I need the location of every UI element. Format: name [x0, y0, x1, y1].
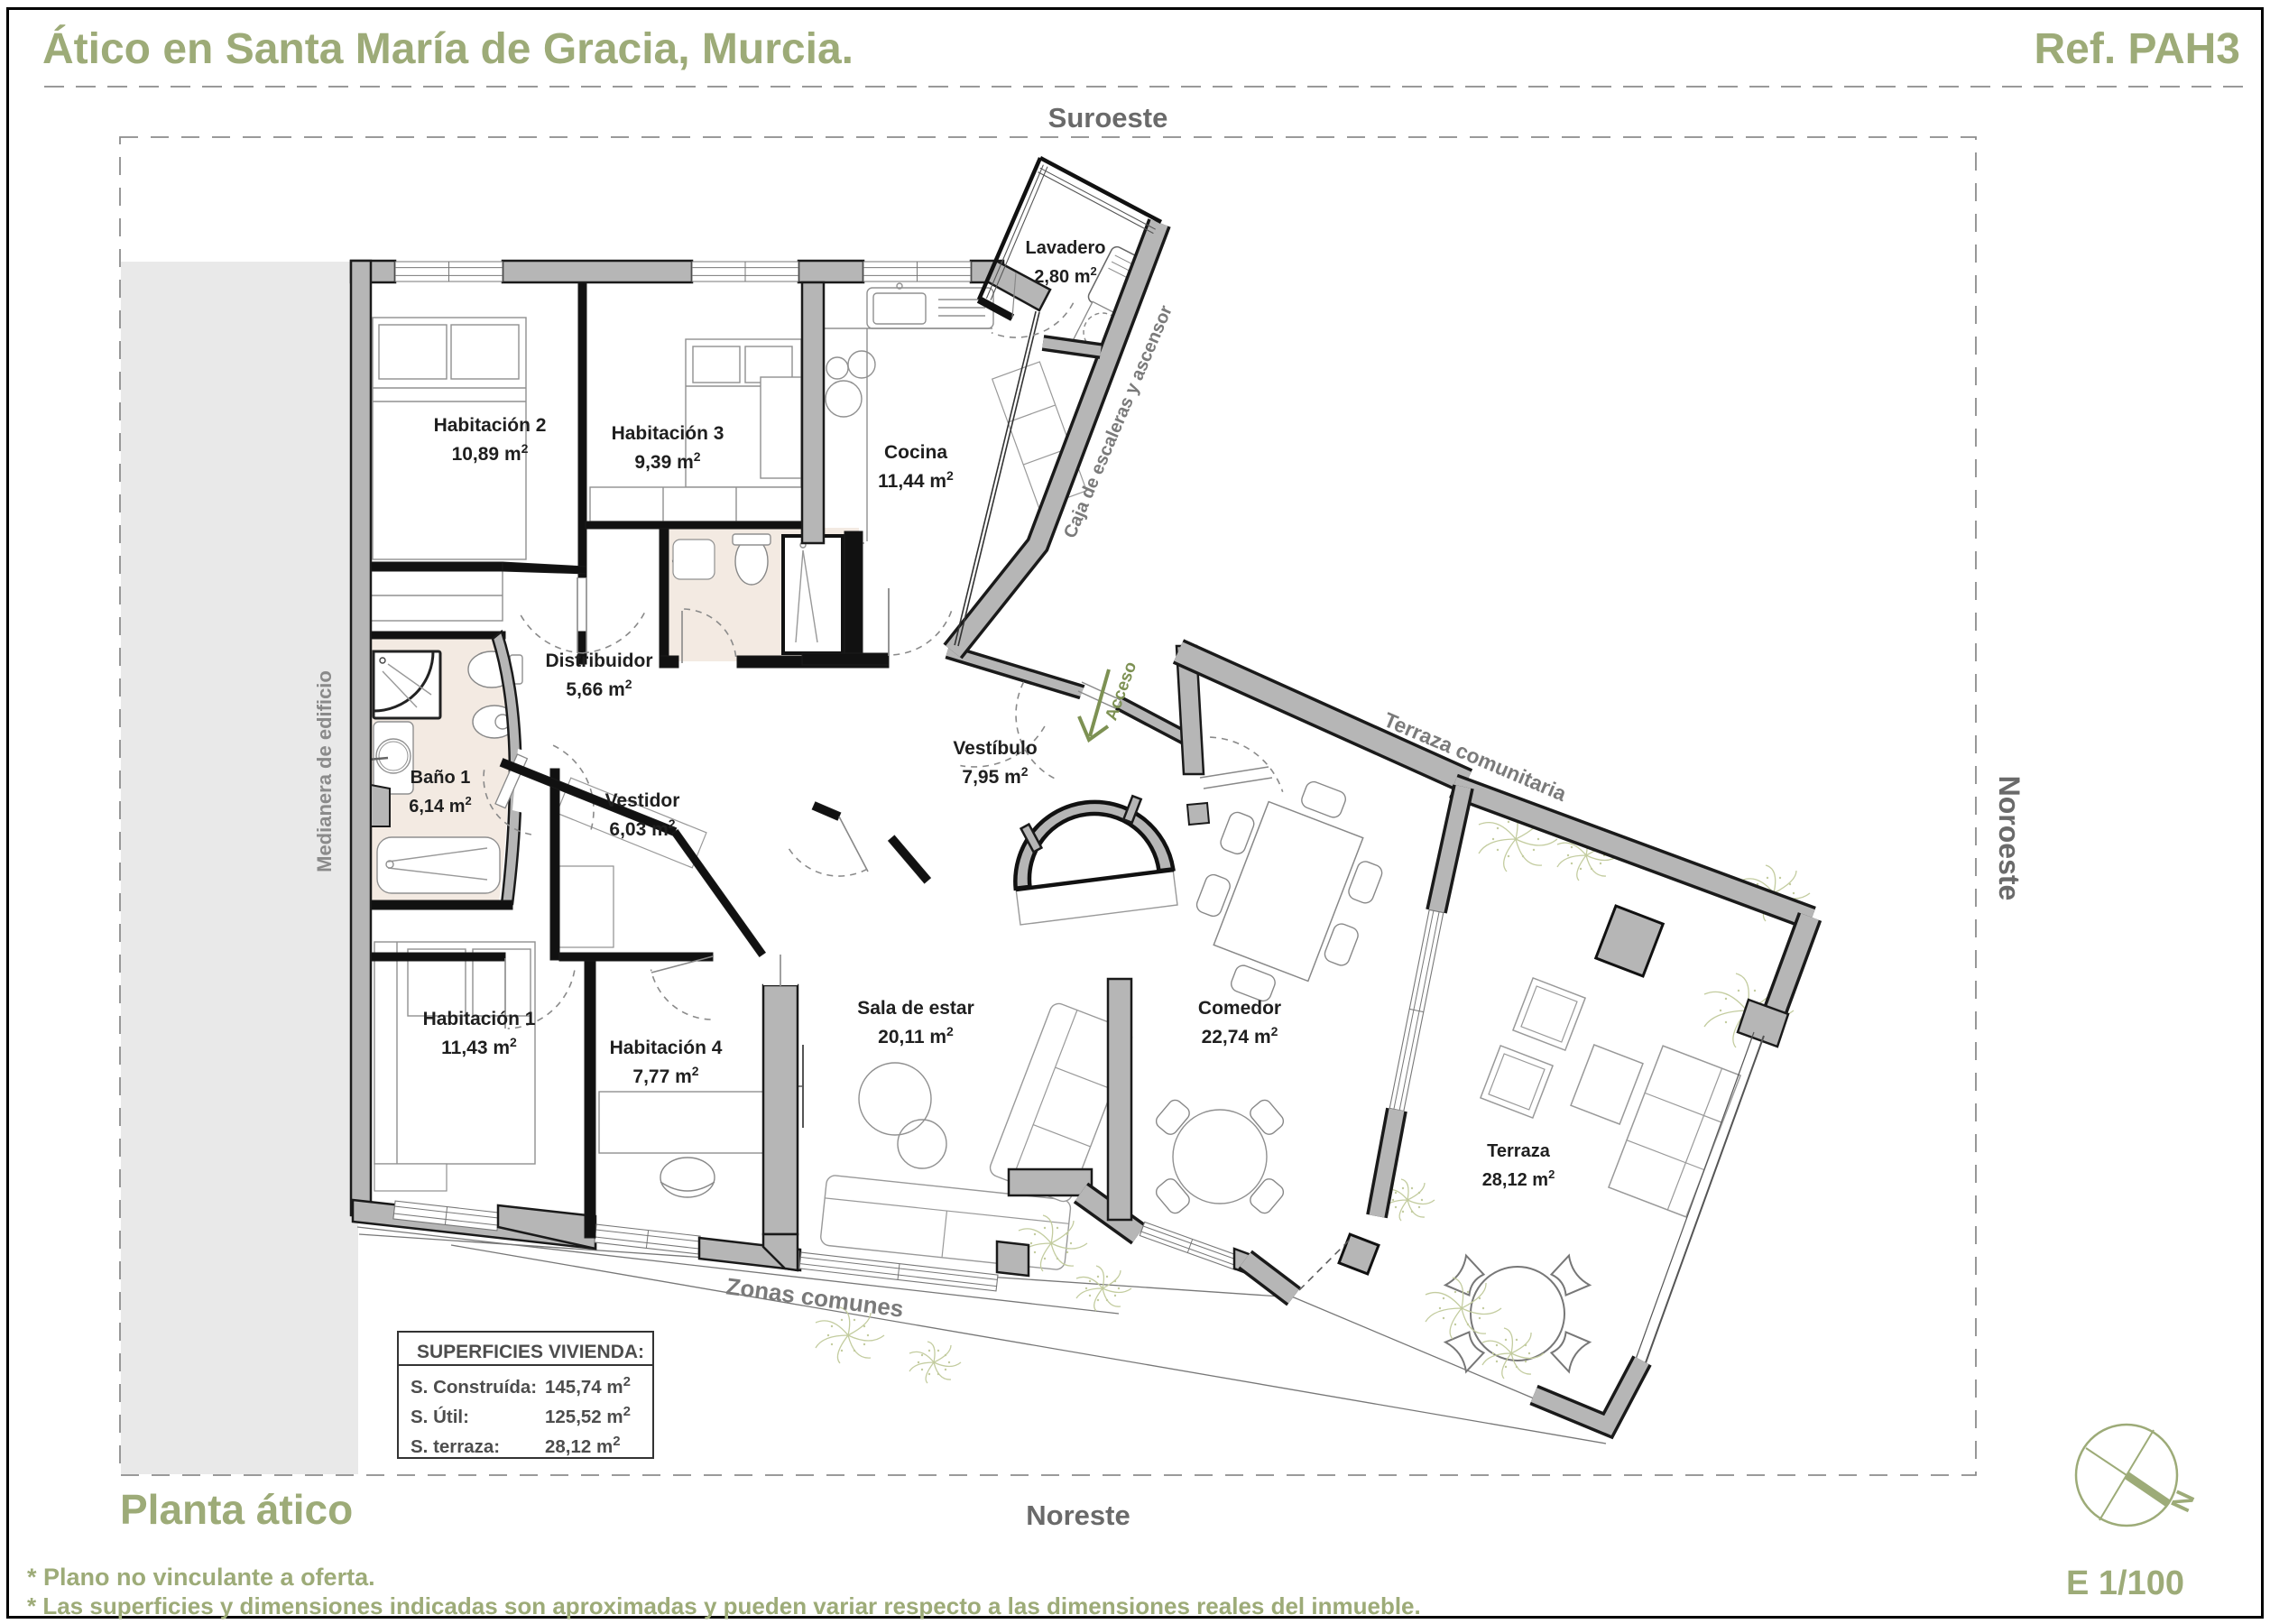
svg-text:Baño 1: Baño 1 [411, 768, 471, 788]
svg-text:28,12 m2: 28,12 m2 [1482, 1167, 1555, 1190]
svg-text:Cocina: Cocina [884, 442, 947, 463]
svg-text:S. terraza:: S. terraza: [411, 1436, 500, 1457]
svg-text:Distribuidor: Distribuidor [546, 651, 653, 671]
svg-text:Habitación 1: Habitación 1 [423, 1009, 536, 1029]
svg-text:125,52 m2: 125,52 m2 [545, 1404, 631, 1427]
svg-text:2,80 m2: 2,80 m2 [1034, 264, 1097, 287]
svg-text:28,12 m2: 28,12 m2 [545, 1434, 621, 1457]
svg-text:7,77 m2: 7,77 m2 [632, 1064, 698, 1087]
svg-text:Medianera de edificio: Medianera de edificio [313, 670, 336, 872]
svg-text:Suroeste: Suroeste [1048, 102, 1168, 134]
svg-text:Habitación 4: Habitación 4 [610, 1038, 723, 1058]
svg-text:Terraza: Terraza [1487, 1141, 1551, 1161]
svg-text:Lavadero: Lavadero [1026, 238, 1106, 258]
svg-text:Noreste: Noreste [1026, 1499, 1130, 1531]
svg-text:Vestíbulo: Vestíbulo [953, 738, 1037, 759]
svg-text:S. Construída:: S. Construída: [411, 1377, 537, 1398]
svg-text:22,74 m2: 22,74 m2 [1202, 1024, 1278, 1047]
svg-text:Comedor: Comedor [1198, 998, 1281, 1019]
svg-text:Sala de estar: Sala de estar [857, 998, 974, 1019]
svg-text:Noroeste: Noroeste [1993, 776, 2025, 901]
svg-text:20,11 m2: 20,11 m2 [878, 1024, 954, 1047]
svg-text:Zonas comunes: Zonas comunes [724, 1272, 905, 1323]
svg-text:6,03 m2: 6,03 m2 [609, 817, 675, 840]
svg-text:Habitación 2: Habitación 2 [434, 415, 547, 436]
svg-text:S. Útil:: S. Útil: [411, 1406, 469, 1427]
svg-text:145,74 m2: 145,74 m2 [545, 1374, 631, 1398]
svg-text:11,44 m2: 11,44 m2 [878, 468, 954, 492]
svg-text:5,66 m2: 5,66 m2 [566, 677, 632, 700]
svg-text:7,95 m2: 7,95 m2 [962, 764, 1028, 788]
svg-text:SUPERFICIES VIVIENDA:: SUPERFICIES VIVIENDA: [417, 1342, 644, 1362]
svg-text:Vestidor: Vestidor [605, 790, 680, 811]
svg-text:Habitación 3: Habitación 3 [612, 423, 724, 444]
svg-text:6,14 m2: 6,14 m2 [409, 794, 472, 817]
svg-text:N: N [2165, 1486, 2201, 1517]
svg-text:9,39 m2: 9,39 m2 [634, 449, 700, 473]
svg-text:11,43 m2: 11,43 m2 [441, 1035, 517, 1058]
svg-text:10,89 m2: 10,89 m2 [452, 441, 529, 465]
